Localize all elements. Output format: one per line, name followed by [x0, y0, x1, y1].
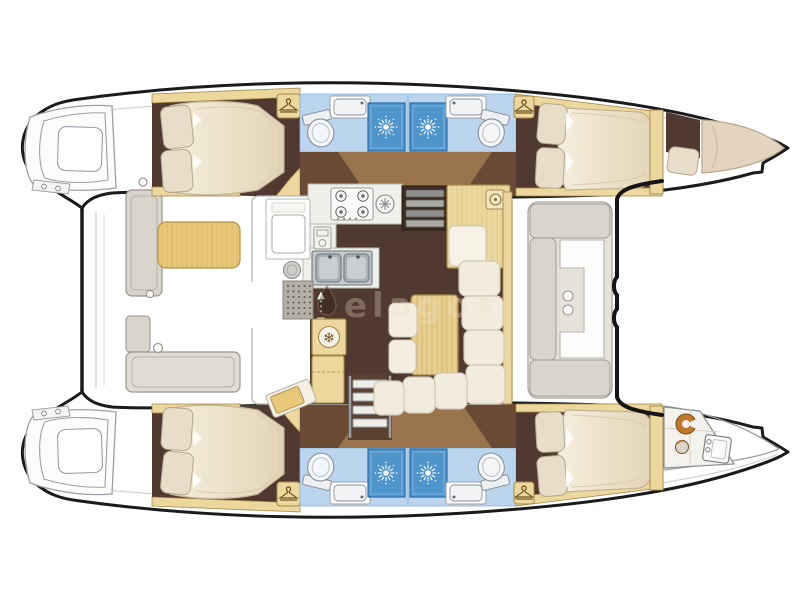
- bow-bulkhead: [650, 406, 663, 490]
- nav-stool: [284, 262, 301, 279]
- port-forepeak: [666, 112, 784, 176]
- floor-grille: [283, 281, 313, 319]
- salon-entry-door: [248, 282, 256, 328]
- forward-cockpit-seat: [530, 238, 556, 360]
- stool: [389, 340, 416, 373]
- port-companionway-steps: [402, 186, 448, 230]
- salon-cabinet: [447, 185, 510, 268]
- pillow: [666, 146, 699, 176]
- forward-cockpit-seat: [530, 360, 610, 396]
- port-hull-interior: [152, 88, 663, 196]
- double-sink: [312, 251, 372, 285]
- snowflake-icon: ❄: [323, 331, 335, 347]
- oven: [314, 227, 331, 249]
- vberth-cushion: [702, 120, 784, 173]
- watermark: elagos: [318, 284, 500, 326]
- watermark-text: elagos: [344, 286, 500, 326]
- round-hob: [376, 195, 394, 213]
- forward-cockpit-seat: [530, 204, 610, 238]
- galley-cabinet: [312, 356, 344, 403]
- fridge: ❄: [312, 319, 346, 355]
- cockpit-seat-module: [126, 352, 240, 392]
- catamaran-floorplan: ▲ ▼ ❄: [0, 0, 802, 601]
- starboard-hull-interior: [152, 404, 663, 512]
- seat-cushion: [449, 226, 486, 266]
- forward-crossbeam: [614, 181, 662, 415]
- forward-cockpit: [528, 202, 612, 398]
- crew-head-unit: [702, 434, 731, 463]
